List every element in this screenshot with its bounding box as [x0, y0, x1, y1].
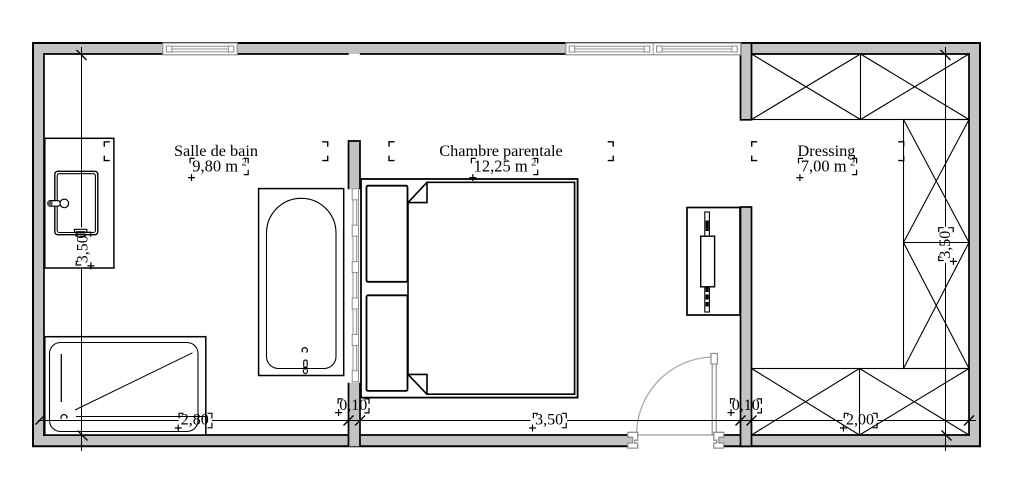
svg-text:0,10: 0,10	[732, 397, 760, 414]
svg-text:3,50: 3,50	[535, 412, 563, 429]
svg-text:3,50: 3,50	[937, 231, 954, 259]
svg-text:3,50: 3,50	[75, 235, 92, 263]
svg-text:12,25 m2: 12,25 m2	[474, 157, 537, 176]
svg-text:0,10: 0,10	[339, 397, 367, 414]
svg-text:2,80: 2,80	[181, 412, 209, 429]
svg-text:2,00: 2,00	[846, 412, 874, 429]
